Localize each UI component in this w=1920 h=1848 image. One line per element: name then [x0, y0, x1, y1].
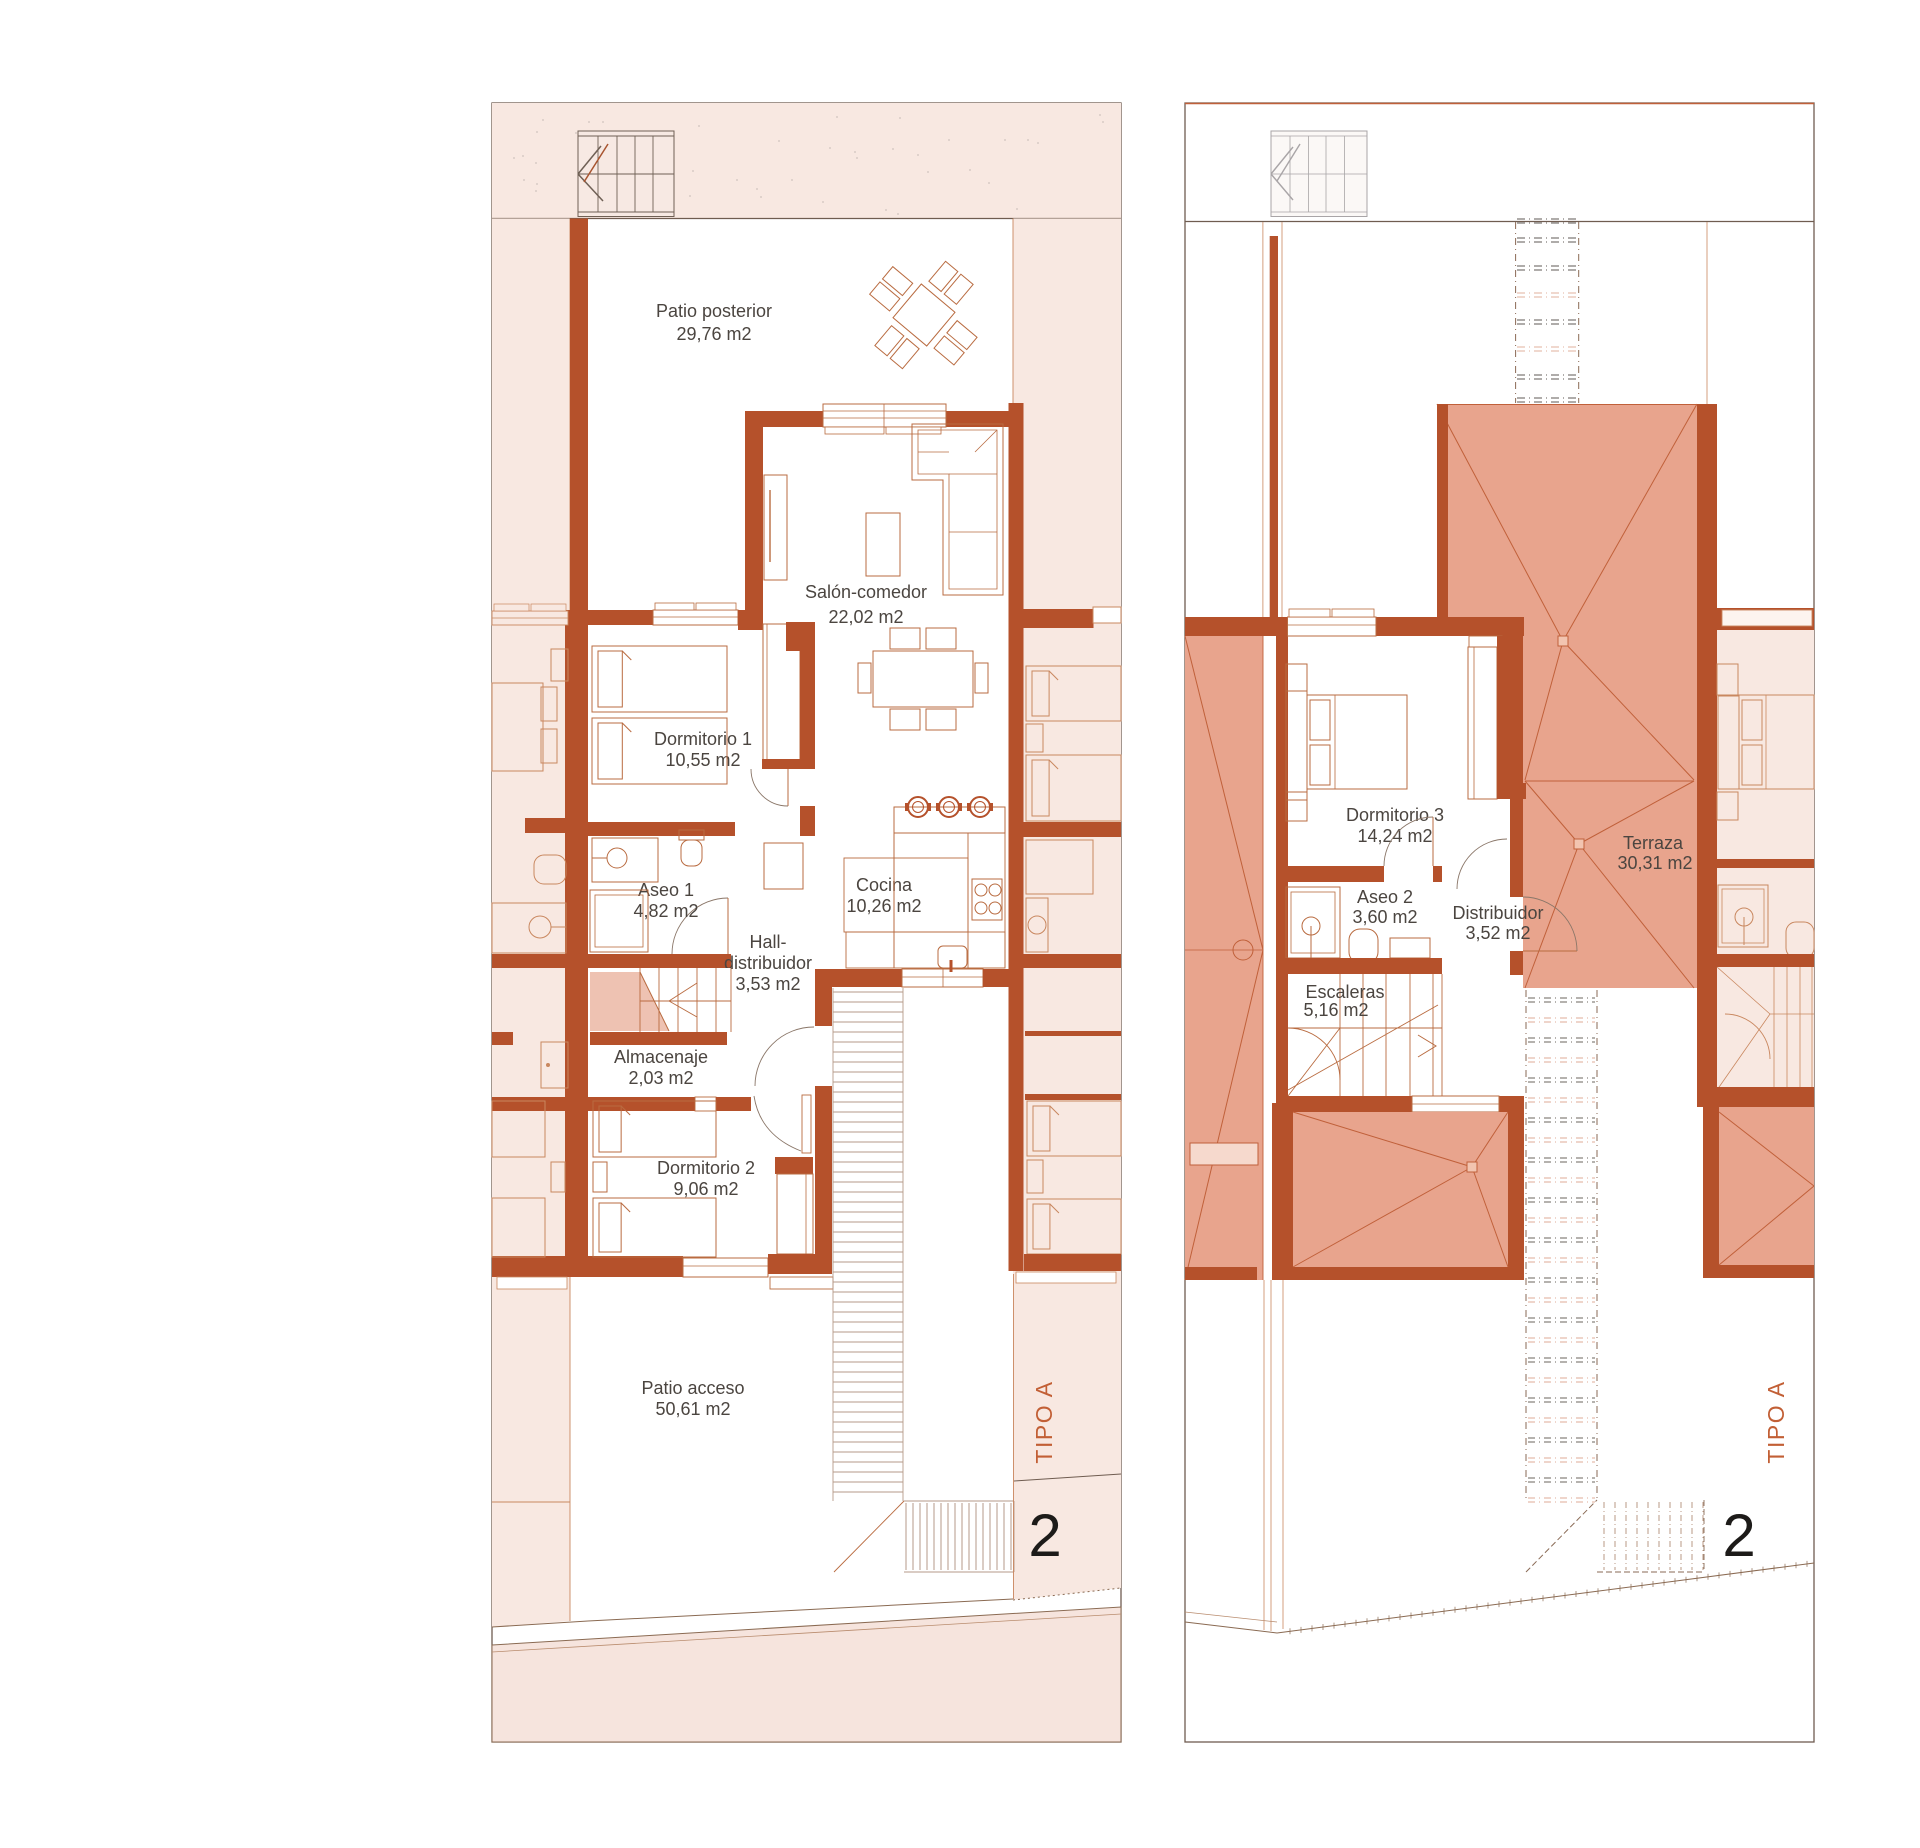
- svg-text:Patio posterior: Patio posterior: [656, 301, 772, 321]
- svg-text:3,52 m2: 3,52 m2: [1465, 923, 1530, 943]
- svg-text:2,03 m2: 2,03 m2: [628, 1068, 693, 1088]
- svg-text:30,31 m2: 30,31 m2: [1617, 853, 1692, 873]
- svg-text:Almacenaje: Almacenaje: [614, 1047, 708, 1067]
- svg-text:Cocina: Cocina: [856, 875, 913, 895]
- svg-text:Escaleras: Escaleras: [1305, 982, 1384, 1002]
- svg-text:3,60 m2: 3,60 m2: [1352, 907, 1417, 927]
- svg-text:3,53 m2: 3,53 m2: [735, 974, 800, 994]
- svg-text:5,16 m2: 5,16 m2: [1303, 1000, 1368, 1020]
- svg-text:distribuidor: distribuidor: [724, 953, 812, 973]
- svg-text:2: 2: [1722, 1502, 1755, 1569]
- svg-text:Terraza: Terraza: [1623, 833, 1684, 853]
- svg-text:22,02 m2: 22,02 m2: [828, 607, 903, 627]
- svg-text:9,06 m2: 9,06 m2: [673, 1179, 738, 1199]
- svg-text:2: 2: [1028, 1502, 1061, 1569]
- svg-text:Dormitorio 2: Dormitorio 2: [657, 1158, 755, 1178]
- svg-text:Salón-comedor: Salón-comedor: [805, 582, 927, 602]
- svg-text:TIPO A: TIPO A: [1763, 1380, 1789, 1463]
- svg-text:10,26 m2: 10,26 m2: [846, 896, 921, 916]
- svg-text:14,24 m2: 14,24 m2: [1357, 826, 1432, 846]
- svg-text:Distribuidor: Distribuidor: [1452, 903, 1543, 923]
- svg-text:29,76 m2: 29,76 m2: [676, 324, 751, 344]
- svg-text:Dormitorio 1: Dormitorio 1: [654, 729, 752, 749]
- svg-text:50,61 m2: 50,61 m2: [655, 1399, 730, 1419]
- svg-text:10,55 m2: 10,55 m2: [665, 750, 740, 770]
- svg-text:Aseo 2: Aseo 2: [1357, 887, 1413, 907]
- svg-text:Hall-: Hall-: [749, 932, 786, 952]
- svg-text:Dormitorio 3: Dormitorio 3: [1346, 805, 1444, 825]
- svg-text:TIPO A: TIPO A: [1031, 1380, 1057, 1463]
- svg-text:Patio acceso: Patio acceso: [641, 1378, 744, 1398]
